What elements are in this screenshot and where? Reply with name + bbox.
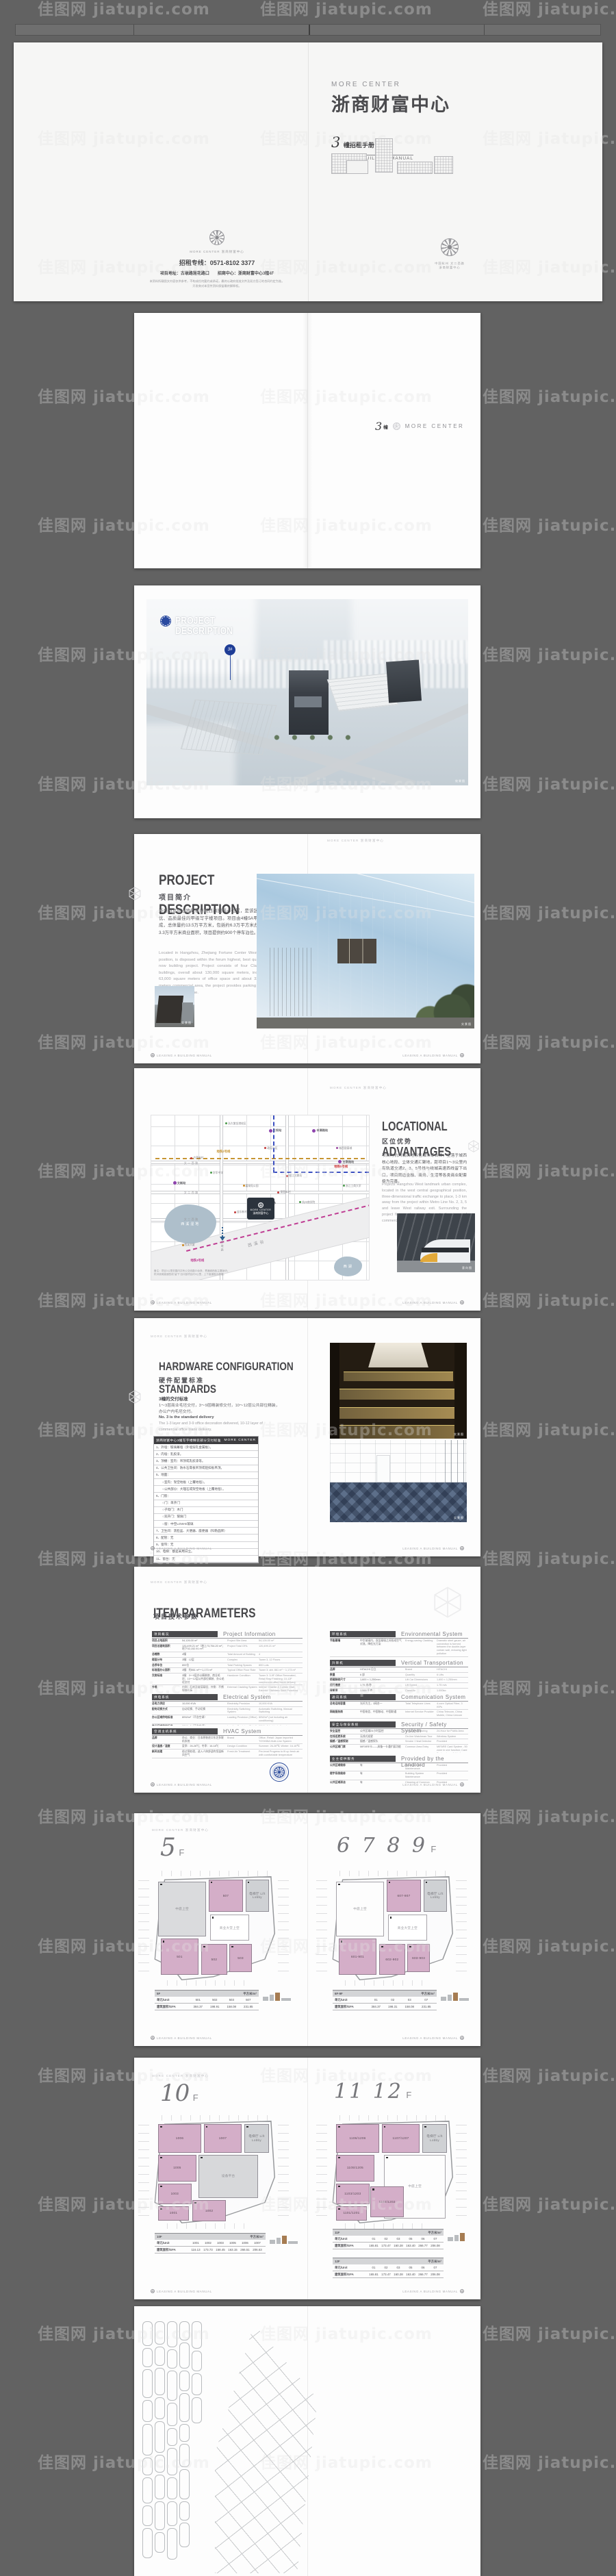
building-footprint-outline	[155, 2532, 165, 2553]
building-footprint-outline	[179, 2523, 190, 2547]
dimension-ladder	[456, 1880, 467, 1974]
poi-dot-icon	[264, 1147, 266, 1149]
metro-line-2	[155, 1158, 364, 1159]
dimension-ladder	[456, 2125, 467, 2217]
laurel-badge-icon	[270, 1763, 289, 1782]
skylight-shape	[368, 1343, 428, 1367]
unit-row: 单元/Unit 010203050607	[333, 2264, 444, 2271]
plan-room: 中庭上空	[158, 1882, 206, 1937]
section-scale-icon	[263, 1993, 291, 2001]
scale-bar	[453, 1993, 458, 2001]
footer-rosette-icon	[151, 1300, 155, 1304]
dimension-ticks	[345, 2223, 431, 2229]
section-title-cn: 供电系统	[152, 1694, 218, 1700]
plan-room: 1002	[192, 2200, 226, 2222]
front-cover-logo-block: 中国杭州 文二西路 浙商财富中心	[419, 238, 480, 270]
building-footprint-outline	[155, 2347, 165, 2366]
unit-cell: 07	[429, 2266, 441, 2270]
table-rows: 1、外墙：玻璃幕墙（外墙穿孔金属板）。2、内墙：乳胶漆。3、顶棚：室内：吊顶或乳…	[154, 1444, 258, 1563]
dimension-ticks	[162, 1871, 268, 1876]
metro-station-label: 三坝站	[269, 1128, 282, 1133]
table-unit: 平方米/m²	[428, 2260, 441, 2264]
building-outline-icon	[434, 156, 453, 174]
gfa-cell: 165.81	[368, 2244, 380, 2248]
delivery-text-en: The 1-3 layer and 3-9 office decoration …	[159, 1421, 282, 1433]
section-title-cn: 升降机	[330, 1660, 396, 1666]
train-windows-shape	[422, 1248, 468, 1252]
section-security: 安全与保安系统 Security / Safety System 安全监控公共区…	[330, 1721, 468, 1753]
fold-line	[307, 1813, 308, 2046]
param-label-en: Fresh Air Treatment	[227, 1750, 259, 1756]
room-label: 601-901	[351, 1955, 364, 1958]
section-title-cn: 通讯系统	[330, 1694, 396, 1700]
plan-room: 1101/1201	[336, 2206, 367, 2221]
param-value-cn: 光纤为主，3网合一	[360, 1702, 405, 1708]
poi-dot-icon	[286, 1175, 288, 1177]
section-subtitle: 硬件配置标准	[159, 1376, 204, 1385]
table-row: ○双开门：玻璃门	[154, 1514, 258, 1521]
dimension-ladder	[138, 2125, 149, 2217]
plan-number: 11 12	[334, 2080, 403, 2104]
param-value-cn: 4幢	[182, 1653, 227, 1656]
brand-rosette-icon	[393, 422, 400, 430]
scale-bar	[454, 2235, 459, 2241]
room-label: 设备平台	[222, 2174, 235, 2177]
param-value-cn: 办公、商业：日本原装进口东芝多联机系统	[182, 1737, 227, 1743]
section-environmental: 环境系统 Environmental System 节能幕墙中空玻璃内，双层幕墙…	[330, 1631, 468, 1657]
param-value-cn: 夏季：26-28℃；冬季：16-18℃	[182, 1745, 227, 1748]
table-title: 浙商财富中心3幢写字楼精装部分交付标准	[156, 1438, 221, 1443]
param-label-cn: 运行速度	[330, 1684, 360, 1687]
poi-name: 耀江文鼎苑	[289, 1174, 302, 1177]
param-value-en: 1,000kg	[437, 1689, 468, 1691]
poi-name: 翠苑新村	[280, 1191, 290, 1194]
plan-room: 中庭上空	[336, 1882, 384, 1937]
poi-label: 浙大紫金港校区	[225, 1122, 246, 1126]
map-note: 备注：项目1公里范围内共有公交线路20余条，贯通城西各主要版块； 杭州绕城高速西…	[154, 1270, 229, 1278]
spread-siteplan	[134, 2306, 480, 2576]
dimension-ladder	[316, 2125, 327, 2217]
param-row: 外墙内侧：石材及玻璃幕墙；外侧：不锈钢穿孔板External Cladding …	[152, 1685, 303, 1691]
param-label-en: Quantity	[405, 1674, 437, 1677]
footer-text: LEASING A BUILDING MANUAL	[157, 1783, 212, 1786]
unit-cell: 01	[368, 2237, 380, 2241]
room-label: 607-907	[398, 1894, 411, 1897]
watermark-text: 佳图网 jiatupic.com	[483, 383, 616, 407]
param-value-cn: 自动切换、手动切换	[182, 1708, 227, 1714]
photo-caption: 实景图	[181, 1021, 192, 1025]
plan-room: 603-903	[407, 1944, 429, 1972]
param-value-cn: 6 部	[360, 1674, 405, 1677]
render-title-block: PROJECT DESCRIPTION	[160, 616, 246, 637]
edge-divider	[309, 25, 310, 35]
gfa-cell: 384.37	[368, 2005, 385, 2009]
aerial-render-image: PROJECT DESCRIPTION 3# 效果图	[146, 599, 468, 785]
gfa-cell: 206.08	[429, 2273, 441, 2277]
param-label-en: Brand	[405, 1668, 437, 1671]
building-footprint-outline	[167, 2371, 177, 2401]
scale-bar	[270, 1995, 274, 2001]
section-lifts: 升降机 Vertical Transportation 品牌HITACHI 日立…	[330, 1660, 468, 1691]
param-label-cn: 新风处理	[152, 1750, 182, 1756]
param-label-cn: 楼层分布	[152, 1658, 182, 1662]
param-label-cn: 总电话线容量	[330, 1702, 360, 1708]
unit-cell: 501	[190, 1998, 207, 2002]
gfa-cell: 206.08	[429, 2244, 441, 2248]
param-label-en: Typical Office Floor Rate	[227, 1669, 259, 1672]
unit-cell: 01	[368, 1998, 385, 2002]
table-row: ○窗：中空LOW-E玻璃	[154, 1521, 258, 1528]
station-dot-icon	[338, 1160, 342, 1163]
plan-number: 6 7 8 9	[337, 1834, 428, 1858]
section-head: 安全与保安系统 Security / Safety System	[330, 1721, 468, 1729]
dimension-ticks	[167, 1980, 253, 1986]
table-header: 12F 平方米/m²	[333, 2258, 444, 2264]
brand-rosette-icon	[209, 230, 224, 245]
photo-caption: 效果图	[455, 779, 465, 783]
watermark-text: 佳图网 jiatupic.com	[483, 2191, 616, 2214]
footer-text: LEASING A BUILDING MANUAL	[157, 1054, 212, 1057]
section-rows: 品牌办公、商业：日本原装进口东芝多联机系统BrandOffice, Retail…	[152, 1736, 303, 1758]
design-preview-canvas: 佳图网 jiatupic.com佳图网 jiatupic.com佳图网 jiat…	[0, 0, 616, 2576]
metro-line-2-label: 地铁2号线	[216, 1150, 230, 1154]
plan-room: 503	[229, 1944, 251, 1972]
section-communication: 通讯系统 Communication System 总电话线容量光纤为主，3网合…	[330, 1694, 468, 1719]
table-name: 6F-9F	[335, 1992, 343, 1996]
param-value-en: Tower 3: 3-9F Office Renovated, Retail R…	[259, 1674, 303, 1684]
param-value-en: 1,600 × 1,250mm	[437, 1678, 468, 1682]
param-label-en: Loading Provision (Retail)	[227, 1725, 259, 1726]
gfa-cell: 165.81	[368, 2273, 380, 2277]
address-text: 项目地址：古墩路莲花路口 招商中心：浙商财富中心3幢4F	[135, 270, 299, 276]
station-name: 古翠路站	[342, 1160, 354, 1163]
unit-cells: 010203050607	[368, 2237, 441, 2241]
param-label-en: Energy-saving Cladding	[405, 1639, 437, 1656]
scale-bar	[263, 1997, 268, 2001]
road-label: 文二西路	[184, 1191, 199, 1195]
building-footprint-outline	[167, 2403, 177, 2426]
poi-label: 嘉绿苑公园	[243, 1185, 259, 1188]
param-row: 数量6 部Quantity6 Lifts	[330, 1673, 468, 1678]
room-label: 1105/1205	[347, 2166, 363, 2169]
param-label-en: On-line Watchman Tour	[405, 1735, 437, 1739]
gfa-cell: 160.28	[392, 2273, 405, 2277]
watermark-text: 佳图网 jiatupic.com	[483, 1287, 616, 1311]
gfa-cell: 160.28	[392, 2244, 405, 2248]
plan-room: 设备平台	[198, 2155, 257, 2198]
table-row: 8、配管：无	[154, 1535, 258, 1541]
hotline-text: 招租专线：0571-8102 3377	[135, 258, 299, 267]
param-value-en: Automatic Switching, Manual Switching	[259, 1708, 303, 1714]
section-head: 空调主机系统 HVAC System	[152, 1728, 303, 1736]
plan-room: 1105/1205	[336, 2155, 374, 2182]
poi-label: 学军中学	[210, 1172, 223, 1175]
gfa-cell: 266.51	[239, 2248, 251, 2252]
atrium-photo: 实景图	[330, 1343, 467, 1439]
arrow-road-label: 古墩路	[220, 1241, 224, 1252]
gfa-cell: 206.63	[251, 2248, 264, 2252]
building-footprint-outline	[179, 2469, 190, 2499]
table-row-text: ○室内：架空地板（上覆地毯）。	[156, 1480, 207, 1484]
building-footprint-outline	[192, 2397, 202, 2423]
param-value-cn: 中国电信、中国移动、中国联通	[360, 1710, 405, 1717]
table-row-text: 5、地面：	[156, 1473, 170, 1476]
unit-cell: 1006	[239, 2241, 251, 2245]
param-value-en: Interior: Granite & Curtain Wall; Exteri…	[259, 1686, 303, 1691]
param-label-en: Loading Provision (Office)	[227, 1716, 259, 1722]
gfa-row: 建筑面积/GFA 165.81173.47160.28163.40266.772…	[333, 2243, 444, 2249]
spread-location: MORE CENTER 浙商财富中心 西溪谷 西溪湿地 西湖 地铁2号线	[134, 1068, 480, 1311]
param-label-en: Internet Service Provider	[405, 1710, 437, 1717]
table-row: 11、窗台：无	[154, 1556, 258, 1563]
gfa-cell: 384.37	[190, 2005, 207, 2009]
param-label-en: Total Telephone Lines	[405, 1702, 437, 1708]
building-footprint-outline	[155, 2421, 165, 2453]
param-value-cn: 3幢：3～9层办公精装修、商业毛坯；10～12层公共部位精装、办公毛坯交付	[182, 1674, 227, 1684]
section-subtitle: 区位优势	[382, 1137, 412, 1146]
param-label-cn: 项目总建筑面积	[152, 1645, 182, 1651]
fold-shade	[303, 313, 312, 568]
param-row: 运行速度1.75 米/秒Lift Speed1.75 m/s	[330, 1683, 468, 1689]
param-value-cn: 内侧：石材及玻璃幕墙；外侧：不锈钢穿孔板	[182, 1686, 227, 1691]
table-row: 2、内墙：乳胶漆。	[154, 1451, 258, 1458]
title-line1: HARDWARE CONFIGURATION	[159, 1361, 294, 1373]
cover-title-cn: 浙商财富中心	[331, 90, 450, 116]
dark-cube-building	[386, 659, 422, 703]
section-rows: 总电力供应10,000 KVAElectricity Provision10,0…	[152, 1702, 303, 1726]
building-footprint-outline	[142, 2400, 153, 2422]
section-subtitle: 项目简介	[159, 892, 192, 902]
param-value-cn: 1,000 千克	[360, 1689, 405, 1691]
param-label-cn: 总停车位	[152, 1664, 182, 1667]
param-label-en: Smoke / Heat Detector	[405, 1740, 437, 1743]
gfa-cell: 266.77	[417, 2244, 429, 2248]
room-label: 1002	[205, 2209, 213, 2212]
table-row-text: 11、窗台：无	[156, 1557, 175, 1561]
param-value-en: 54,126.00 m²	[259, 1639, 303, 1643]
param-label-en: Capacity	[405, 1689, 437, 1691]
scale-bar	[277, 2238, 281, 2244]
param-label-cn: 办公区域供电标准	[152, 1716, 182, 1722]
poi-name: 西溪大厦	[185, 1243, 195, 1246]
unit-cell: 07	[418, 1998, 435, 2002]
row-label: 建筑面积/GFA	[335, 2005, 368, 2009]
unit-cell: 06	[417, 2237, 429, 2241]
poi-dot-icon	[336, 1147, 338, 1149]
inner-number-label: 幢	[383, 423, 388, 430]
section-rows: 项目占地面积54,126.00 m²Project Site Area54,12…	[152, 1639, 303, 1691]
plan-room: 1107/1207	[382, 2124, 420, 2153]
param-value-en: HITACHI	[437, 1668, 468, 1671]
watermark-text: 佳图网 jiatupic.com	[483, 900, 616, 923]
param-value-cn: 80W/m²（不含空调）	[182, 1716, 227, 1722]
plan-room: 502	[201, 1944, 227, 1975]
metro-station-label: 文新站	[173, 1181, 186, 1185]
param-row: 载重量1,000 千克Capacity1,000kg	[330, 1689, 468, 1691]
section-title-en: Environmental System	[401, 1631, 463, 1637]
small-building-photo: 实景图	[155, 986, 194, 1027]
room-label: 电梯厅 Lift Lobby	[424, 1892, 446, 1899]
plan-title-6789f: 6 7 8 9 F	[337, 1834, 436, 1858]
param-value-en: China Telecom, China Mobile, China Unico…	[437, 1710, 468, 1717]
dimension-ladder	[278, 2125, 289, 2217]
section-title: LOCATIONAL ADVANTAGES	[382, 1108, 451, 1158]
watermark-text: 佳图网 jiatupic.com	[483, 771, 616, 794]
plan-title-1112f: 11 12 F	[334, 2080, 411, 2104]
unit-cell: 02	[380, 2266, 392, 2270]
param-label-cn: 楼宇系统维修	[330, 1772, 360, 1778]
param-value-en: 6 Lifts	[437, 1674, 468, 1677]
param-value-cn: MIFARE卡——具备一卡通扩展功能	[360, 1745, 405, 1753]
param-label-en: Lift Car Dimensions	[405, 1678, 437, 1682]
spread-hardware: MORE CENTER 浙商财富中心 HARDWARE CONFIGURATIO…	[134, 1318, 480, 1556]
dimension-ladder	[316, 1880, 327, 1974]
gfa-row: 建筑面积/GFA 165.81173.47160.28163.40266.772…	[333, 2271, 444, 2278]
footer-text: LEASING A BUILDING MANUAL	[402, 2036, 458, 2040]
inner-brand-name: MORE CENTER	[405, 423, 465, 429]
spread-floorplans-1: MORE CENTER 浙商财富中心 5 F 中庭上空507电梯厅 Lift L…	[134, 1813, 480, 2046]
section-title-en: Provided by the Landlord	[401, 1756, 468, 1768]
back-cover-contact-block: MORE CENTER 浙商财富中心 招租专线：0571-8102 3377 项…	[135, 230, 299, 288]
metro-station-label: 古翠路站	[338, 1160, 354, 1164]
road-name: 文一西路	[184, 1161, 199, 1165]
poi-name: 古荡新村	[193, 1157, 203, 1159]
scale-bar	[459, 1998, 469, 2001]
gfa-cell: 163.40	[405, 2273, 417, 2277]
back-logo-caption: MORE CENTER 浙商财富中心	[135, 250, 299, 254]
param-value-en: Wireless System	[437, 1735, 468, 1739]
table-header: 5F 平方米/m²	[155, 1990, 259, 1997]
station-name: 三坝站	[273, 1128, 282, 1132]
table-row: ○子母门：木门	[154, 1507, 258, 1514]
area-table-6789f: 6F-9F 平方米/m² 单元/Unit 01020307 建筑面积/GFA 3…	[333, 1990, 437, 2010]
param-value-en: Provided	[437, 1740, 468, 1743]
param-label-cn: 节能幕墙	[330, 1639, 360, 1656]
building-footprint-outline	[155, 2475, 165, 2499]
plan-title-5f: 5 F	[160, 1834, 184, 1862]
room-label: 1106/1206	[349, 2136, 365, 2140]
param-value-cn: 有	[360, 1764, 405, 1770]
footer-text: LEASING A BUILDING MANUAL	[402, 2290, 458, 2293]
param-row: 设计温度／湿度夏季：26-28℃；冬季：16-18℃Design Conditi…	[152, 1744, 303, 1750]
poi-label: 政苑小区	[264, 1147, 277, 1150]
delivery-title-en: No. 3 is the standard delivery	[159, 1415, 214, 1419]
section-title-en: Communication System	[401, 1694, 465, 1700]
fold-line	[307, 1318, 308, 1556]
param-value-cn: 烟感／温感探头	[360, 1740, 405, 1743]
plan-room: 1006	[158, 2124, 201, 2153]
param-row: 商业区域供电标准80W/m²（不含空调）Loading Provision (R…	[152, 1724, 303, 1726]
param-row: 标准层办公面积3幢：约861 m²～1,173 m²Typical Office…	[152, 1668, 303, 1674]
building-outline-icon	[375, 138, 393, 173]
section-head: 供电系统 Electrical System	[152, 1694, 303, 1702]
unit-cell: 05	[405, 2266, 417, 2270]
table-row: 5、地面：	[154, 1472, 258, 1479]
poi-name: 益乐新村	[237, 1211, 247, 1213]
atrium-floor-band	[338, 1389, 459, 1399]
param-label-cn: 配电切换方式	[152, 1708, 182, 1714]
scale-bar	[441, 1997, 446, 2001]
param-label-cn: 交房标准	[152, 1674, 182, 1684]
poi-label: 古荡新村	[190, 1157, 203, 1160]
table-row: 7、卫生间：洗脸盆、大便器、座便器（科勒品牌）	[154, 1528, 258, 1535]
footer-rosette-icon	[151, 1053, 155, 1057]
spread-parameters: MORE CENTER 浙商财富中心 ITEM PARAMETERS 项目技术参…	[134, 1567, 480, 1793]
hex-flower-icon	[467, 1139, 480, 1153]
room-label: 1103/1203	[344, 2192, 361, 2195]
param-value-cn: 800位	[182, 1664, 227, 1667]
dimension-ladder	[278, 1880, 289, 1974]
param-row: 楼层分布3幢：12层ComplexTower 3, 12 Floors	[152, 1658, 303, 1663]
row-label: 单元/Unit	[157, 2241, 190, 2245]
room-label: 603-903	[412, 1956, 425, 1960]
plan-room: 602-902	[379, 1944, 405, 1975]
param-label-en: Total Parking Spaces	[227, 1664, 259, 1667]
param-row: 项目占地面积54,126.00 m²Project Site Area54,12…	[152, 1639, 303, 1644]
tower-notch	[294, 696, 322, 707]
footer-text: LEASING A BUILDING MANUAL	[402, 1054, 458, 1057]
dark-tower-building	[289, 670, 329, 735]
page-header: MORE CENTER 浙商财富中心	[330, 1086, 387, 1090]
unit-cell: 02	[385, 1998, 402, 2002]
plan-room: 1007	[204, 2124, 242, 2153]
plan-room: 1106/1206	[336, 2124, 379, 2153]
param-value-en: Provided	[437, 1772, 468, 1778]
watermark-text: 佳图网 jiatupic.com	[38, 0, 210, 19]
unit-cell: 06	[417, 2266, 429, 2270]
table-row-text: 6、门窗：	[156, 1494, 170, 1498]
section-title-cn: 安全与保安系统	[330, 1721, 396, 1728]
footer-rosette-icon	[151, 2036, 155, 2040]
page-header: MORE CENTER 浙商财富中心	[152, 2074, 209, 2078]
param-label-en: Brand	[227, 1737, 259, 1743]
building-footprint-outline	[155, 2368, 165, 2395]
unit-cell: 01	[368, 2266, 380, 2270]
building-line-art	[331, 138, 453, 174]
photo-caption: 实景图	[461, 1022, 472, 1026]
table-unit: 平方米/m²	[250, 2235, 264, 2239]
table-row: 3、顶棚：室内：吊顶或乳胶漆等。	[154, 1458, 258, 1465]
spread-project-description: MORE CENTER 浙商财富中心 PROJECT DESCRIPTION 项…	[134, 834, 480, 1063]
scale-bar	[282, 2236, 287, 2244]
edge-divider	[484, 25, 485, 35]
render-title-line2: DESCRIPTION	[175, 626, 233, 636]
table-row: ○室内：架空地板（上覆地毯）。	[154, 1479, 258, 1486]
plan-floor-suffix: F	[179, 1847, 184, 1858]
unit-cell: 05	[405, 2237, 417, 2241]
gfa-cell: 173.73	[202, 2248, 214, 2252]
section-scale-icon	[441, 1993, 469, 2001]
plan-room: 电梯厅 Lift Lobby	[422, 2124, 447, 2153]
poi-label: 益乐新村	[234, 1211, 247, 1214]
unit-cells: 01020307	[368, 1998, 435, 2002]
gfa-cell: 158.08	[223, 2005, 240, 2009]
carpet-floor-shape	[330, 1482, 467, 1522]
interior-column	[376, 1455, 390, 1483]
unit-cell: 1002	[202, 2241, 214, 2245]
poi-label: 翠苑新村	[277, 1191, 290, 1194]
badge-pointer-line	[230, 655, 231, 680]
inner-number: 3	[375, 420, 382, 433]
gfa-row: 建筑面积/GFA 384.37198.31158.08231.85	[333, 2004, 437, 2010]
param-label-cn: 品牌	[330, 1668, 360, 1671]
photo-caption: 实景图	[454, 1432, 464, 1437]
building-footprint-outline	[142, 2369, 153, 2398]
param-row: 品牌办公、商业：日本原装进口东芝多联机系统BrandOffice, Retail…	[152, 1736, 303, 1744]
plan-room: 507	[209, 1880, 243, 1912]
section-landlord: 业主提供服务 Provided by the Landlord 公共区域维修有C…	[330, 1756, 468, 1784]
param-row: 总电话线容量光纤为主，3网合一Total Telephone Lines4-co…	[330, 1702, 468, 1710]
